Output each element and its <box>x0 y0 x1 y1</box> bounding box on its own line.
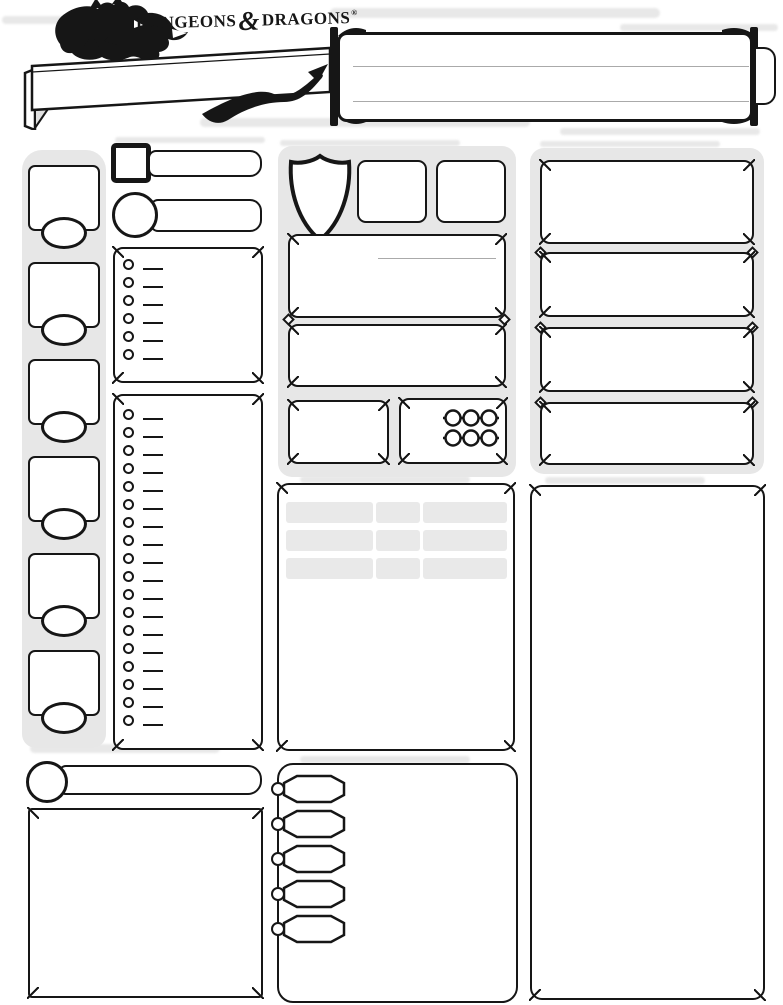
corner-ornament <box>539 381 551 393</box>
skill-row-proficiency-circle[interactable] <box>123 589 134 600</box>
skill-row-modifier-line[interactable] <box>143 436 163 438</box>
skill-row-modifier-line[interactable] <box>143 634 163 636</box>
skill-row-proficiency-circle[interactable] <box>123 643 134 654</box>
proficiency-bonus-circle[interactable] <box>112 192 158 238</box>
skill-row-proficiency-circle[interactable] <box>123 445 134 456</box>
skill-row-proficiency-circle[interactable] <box>123 607 134 618</box>
attack-damage-field[interactable] <box>423 502 507 523</box>
coin-pouch-tab <box>271 922 285 936</box>
skill-row-proficiency-circle[interactable] <box>123 661 134 672</box>
current-hit-points-box[interactable] <box>288 234 506 318</box>
header-info-row-2[interactable] <box>340 67 750 100</box>
coin-pouch-column <box>281 774 347 944</box>
ideals-box[interactable] <box>540 252 754 317</box>
ability-modifier-oval[interactable] <box>41 605 87 637</box>
ability-score-box <box>28 650 100 734</box>
ability-scores-column <box>22 150 106 748</box>
attack-bonus-field[interactable] <box>376 502 420 523</box>
skills-box <box>113 394 263 750</box>
skill-row-modifier-line[interactable] <box>143 580 163 582</box>
character-name-banner[interactable] <box>22 36 340 130</box>
corner-ornament <box>378 453 390 465</box>
coin-pouch-hexagon <box>281 914 347 944</box>
skill-row-proficiency-circle[interactable] <box>123 409 134 420</box>
skill-row <box>115 553 265 564</box>
attack-bonus-field[interactable] <box>376 558 420 579</box>
saving-throw-row <box>115 295 265 306</box>
passive-perception-circle[interactable] <box>26 761 68 803</box>
corner-ornament <box>276 482 288 494</box>
corner-ornament <box>754 989 766 1001</box>
skill-row-modifier-line[interactable] <box>143 454 163 456</box>
ability-modifier-oval[interactable] <box>41 702 87 734</box>
corner-ornament <box>754 484 766 496</box>
coin-pouch-hexagon <box>281 844 347 874</box>
death-save-success-circle[interactable] <box>464 411 479 426</box>
corner-ornament <box>495 233 507 245</box>
skill-row-modifier-line[interactable] <box>143 526 163 528</box>
saving-throw-row-proficiency-circle[interactable] <box>123 313 134 324</box>
bonds-box[interactable] <box>540 327 754 392</box>
corner-ornament <box>287 399 299 411</box>
saving-throw-row <box>115 313 265 324</box>
skill-row <box>115 589 265 600</box>
saving-throw-row <box>115 277 265 288</box>
ink-smudge <box>330 8 660 18</box>
temporary-hit-points-box[interactable] <box>288 324 506 387</box>
skill-row-proficiency-circle[interactable] <box>123 481 134 492</box>
coin-pouch-hexagon <box>281 774 347 804</box>
corner-ornament <box>27 807 39 819</box>
saving-throw-row-modifier-line[interactable] <box>143 286 163 288</box>
skill-row-proficiency-circle[interactable] <box>123 715 134 726</box>
attack-name-field[interactable] <box>286 530 373 551</box>
corner-ornament <box>252 393 264 405</box>
logo-wordmark: DUNGEONS & DRAGONS ® <box>136 8 346 33</box>
skill-row-proficiency-circle[interactable] <box>123 625 134 636</box>
coin-pouch-tab <box>271 817 285 831</box>
corner-ornament <box>252 372 264 384</box>
armor-class-shield[interactable] <box>286 152 354 244</box>
ability-score-box <box>28 553 100 637</box>
corner-ornament <box>743 233 755 245</box>
skill-row-modifier-line[interactable] <box>143 418 163 420</box>
hit-point-maximum-line[interactable] <box>378 258 496 259</box>
skill-row-proficiency-circle[interactable] <box>123 571 134 582</box>
attack-damage-field[interactable] <box>423 558 507 579</box>
death-save-circles[interactable] <box>401 400 505 462</box>
skill-row-modifier-line[interactable] <box>143 472 163 474</box>
corner-ornament <box>529 989 541 1001</box>
skill-row <box>115 643 265 654</box>
shield-icon <box>286 152 354 244</box>
coin-pouch[interactable] <box>281 844 347 874</box>
corner-ornament <box>378 399 390 411</box>
corner-ornament <box>287 453 299 465</box>
skill-row-proficiency-circle[interactable] <box>123 697 134 708</box>
logo-ampersand: & <box>238 11 260 32</box>
coin-pouch[interactable] <box>281 914 347 944</box>
saving-throw-row <box>115 349 265 360</box>
header-info-box <box>337 32 753 122</box>
ability-modifier-oval[interactable] <box>41 411 87 443</box>
saving-throw-row <box>115 331 265 342</box>
corner-ornament <box>112 393 124 405</box>
features-traits-box[interactable] <box>530 485 765 1000</box>
ink-smudge <box>300 756 470 763</box>
death-save-failure-circle[interactable] <box>464 431 479 446</box>
coin-pouch[interactable] <box>281 774 347 804</box>
skill-row <box>115 481 265 492</box>
saving-throw-row-modifier-line[interactable] <box>143 304 163 306</box>
skill-row-modifier-line[interactable] <box>143 508 163 510</box>
skill-row-proficiency-circle[interactable] <box>123 679 134 690</box>
character-traits-panel <box>530 148 764 474</box>
ability-modifier-oval[interactable] <box>41 217 87 249</box>
attack-name-field[interactable] <box>286 502 373 523</box>
initiative-box[interactable] <box>357 160 427 223</box>
other-proficiencies-languages-box[interactable] <box>28 808 263 998</box>
skill-row <box>115 517 265 528</box>
corner-ornament <box>743 306 755 318</box>
skill-row <box>115 679 265 690</box>
proficiency-bonus-label-pill <box>150 199 262 232</box>
skill-row-modifier-line[interactable] <box>143 544 163 546</box>
coin-pouch-tab <box>271 852 285 866</box>
corner-ornament <box>112 246 124 258</box>
corner-ornament <box>539 159 551 171</box>
saving-throw-row-modifier-line[interactable] <box>143 358 163 360</box>
skill-row <box>115 715 265 726</box>
personality-traits-box[interactable] <box>540 160 754 244</box>
ability-score-box <box>28 359 100 443</box>
attack-damage-field[interactable] <box>423 530 507 551</box>
corner-ornament <box>539 233 551 245</box>
speed-box[interactable] <box>436 160 506 223</box>
ink-smudge <box>300 476 470 483</box>
flaws-box[interactable] <box>540 402 754 465</box>
ink-smudge <box>560 128 760 135</box>
saving-throw-row-proficiency-circle[interactable] <box>123 331 134 342</box>
coin-pouch-tab <box>271 887 285 901</box>
ability-score-box <box>28 456 100 540</box>
attack-entry-grid <box>286 502 507 579</box>
skill-rows <box>115 409 265 726</box>
ability-modifier-oval[interactable] <box>41 508 87 540</box>
ink-smudge <box>545 477 705 484</box>
skill-row-modifier-line[interactable] <box>143 616 163 618</box>
combat-stats-panel <box>278 146 516 477</box>
header-info-row-1[interactable] <box>340 35 750 66</box>
corner-ornament <box>529 484 541 496</box>
coin-pouch[interactable] <box>281 879 347 909</box>
ability-score-box <box>28 262 100 346</box>
corner-ornament <box>504 482 516 494</box>
skill-row-modifier-line[interactable] <box>143 562 163 564</box>
corner-ornament <box>287 376 299 388</box>
skill-row <box>115 697 265 708</box>
saving-throw-row-modifier-line[interactable] <box>143 268 163 270</box>
skill-row-proficiency-circle[interactable] <box>123 517 134 528</box>
skill-row <box>115 661 265 672</box>
skill-row-proficiency-circle[interactable] <box>123 535 134 546</box>
corner-ornament <box>539 454 551 466</box>
logo-word-dungeons: DUNGEONS <box>136 11 237 34</box>
ink-smudge <box>540 141 720 147</box>
corner-ornament <box>504 740 516 752</box>
skill-row <box>115 571 265 582</box>
info-box-ribbon-curl <box>756 47 776 105</box>
death-save-success-circle[interactable] <box>446 411 461 426</box>
corner-ornament <box>539 306 551 318</box>
corner-ornament <box>252 807 264 819</box>
skill-row <box>115 535 265 546</box>
attack-bonus-field[interactable] <box>376 530 420 551</box>
corner-ornament <box>743 454 755 466</box>
saving-throw-row-modifier-line[interactable] <box>143 322 163 324</box>
skill-row <box>115 607 265 618</box>
skill-row-proficiency-circle[interactable] <box>123 553 134 564</box>
skill-row <box>115 409 265 420</box>
passive-perception-label-pill <box>58 765 262 795</box>
saving-throw-row-proficiency-circle[interactable] <box>123 295 134 306</box>
skill-row-modifier-line[interactable] <box>143 688 163 690</box>
skill-row <box>115 427 265 438</box>
coin-pouch[interactable] <box>281 809 347 839</box>
character-sheet-page: DUNGEONS & DRAGONS ® <box>0 0 783 1005</box>
death-save-success-circle[interactable] <box>482 411 497 426</box>
skill-row-proficiency-circle[interactable] <box>123 427 134 438</box>
ability-modifier-oval[interactable] <box>41 314 87 346</box>
coin-pouch-hexagon <box>281 809 347 839</box>
corner-ornament <box>743 381 755 393</box>
skill-row-modifier-line[interactable] <box>143 706 163 708</box>
corner-ornament <box>495 376 507 388</box>
saving-throw-row-proficiency-circle[interactable] <box>123 259 134 270</box>
corner-ornament <box>743 159 755 171</box>
corner-ornament <box>112 372 124 384</box>
saving-throw-row-modifier-line[interactable] <box>143 340 163 342</box>
coin-pouch-tab <box>271 782 285 796</box>
saving-throw-row <box>115 259 265 270</box>
skill-row <box>115 445 265 456</box>
skill-row <box>115 499 265 510</box>
saving-throw-row-proficiency-circle[interactable] <box>123 277 134 288</box>
skill-row-modifier-line[interactable] <box>143 490 163 492</box>
coin-pouch-hexagon <box>281 879 347 909</box>
corner-ornament <box>27 987 39 999</box>
skill-row-modifier-line[interactable] <box>143 652 163 654</box>
skill-row <box>115 463 265 474</box>
skill-row-modifier-line[interactable] <box>143 670 163 672</box>
saving-throw-row-proficiency-circle[interactable] <box>123 349 134 360</box>
saving-throws-box <box>113 247 263 383</box>
skill-row-modifier-line[interactable] <box>143 598 163 600</box>
corner-ornament <box>252 739 264 751</box>
skill-row <box>115 625 265 636</box>
corner-ornament <box>276 740 288 752</box>
inspiration-box[interactable] <box>111 143 151 183</box>
attack-name-field[interactable] <box>286 558 373 579</box>
skill-row-modifier-line[interactable] <box>143 724 163 726</box>
skill-row-proficiency-circle[interactable] <box>123 499 134 510</box>
header-info-row-3[interactable] <box>340 102 750 122</box>
corner-ornament <box>252 987 264 999</box>
hit-dice-box[interactable] <box>288 400 389 464</box>
death-save-failure-circle[interactable] <box>482 431 497 446</box>
corner-ornament <box>252 246 264 258</box>
ability-score-box <box>28 165 100 249</box>
death-save-failure-circle[interactable] <box>446 431 461 446</box>
saving-throw-rows <box>115 259 265 360</box>
registered-trademark-symbol: ® <box>351 8 358 17</box>
inspiration-label-pill <box>148 150 262 177</box>
skill-row-proficiency-circle[interactable] <box>123 463 134 474</box>
death-saves-box <box>399 398 507 464</box>
